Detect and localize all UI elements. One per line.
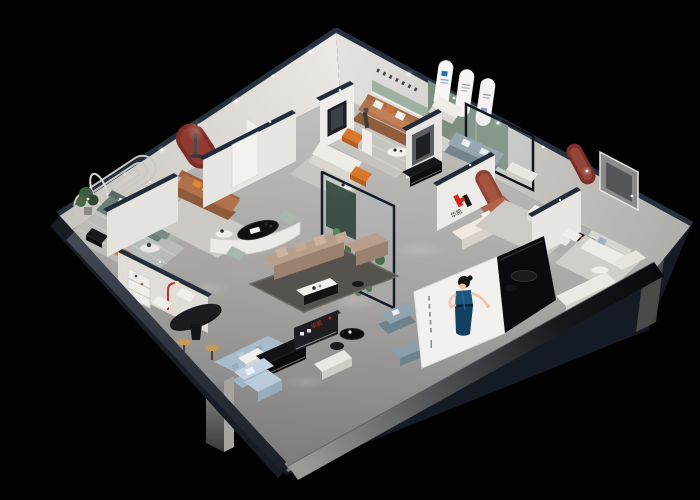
red-logo-dot — [329, 317, 332, 320]
table-silhouette — [511, 271, 537, 282]
screenshot-root: 3D cutaway render of a furniture showroo… — [0, 0, 700, 500]
coffee-table-round-white — [140, 243, 160, 253]
showroom-render: 3D cutaway render of a furniture showroo… — [0, 0, 700, 500]
banner-logo-mark — [441, 71, 448, 77]
chair-silhouette — [505, 285, 517, 292]
chair-dark — [330, 342, 344, 350]
side-table-black — [352, 281, 364, 287]
coffee-table-round — [387, 147, 409, 157]
